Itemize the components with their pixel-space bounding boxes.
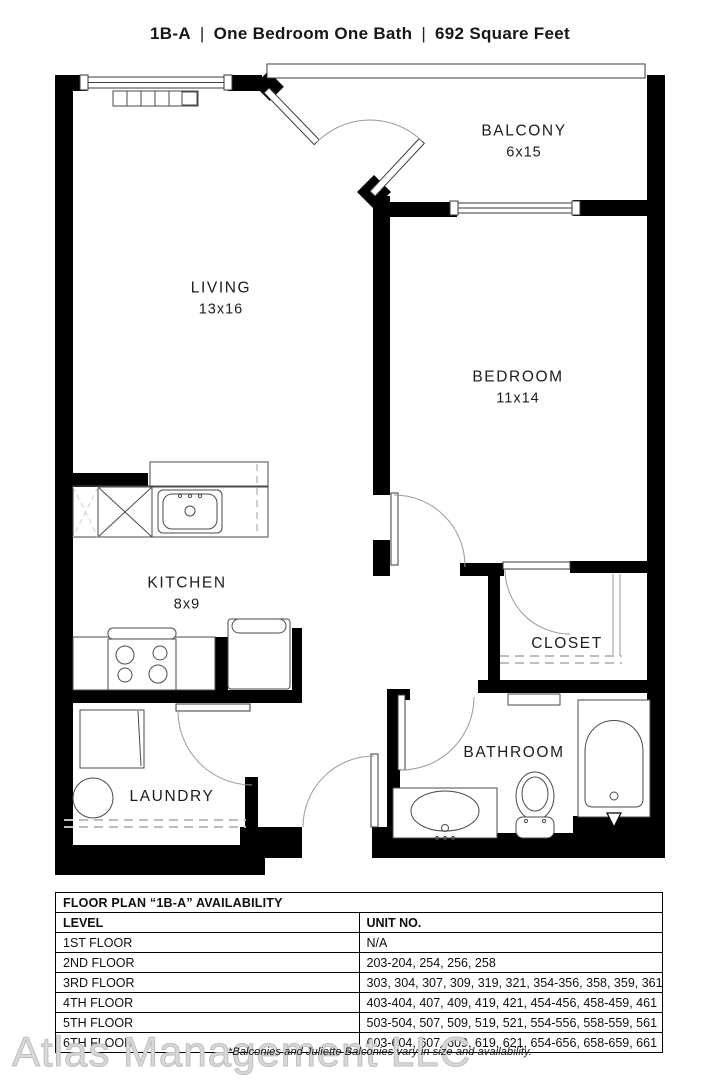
availability-title-row: FLOOR PLAN “1B-A” AVAILABILITY	[56, 893, 663, 913]
dishwasher	[73, 487, 152, 537]
units-cell: 203-204, 254, 256, 258	[359, 953, 663, 973]
laundry-shelf	[64, 820, 246, 827]
level-cell: 4TH FLOOR	[56, 993, 360, 1013]
closet-door	[503, 562, 570, 634]
bedroom-window	[450, 201, 580, 215]
living-name: LIVING	[191, 278, 251, 300]
kitchen-dims: 8x9	[147, 595, 226, 616]
toilet	[516, 772, 554, 838]
stove	[73, 628, 215, 690]
units-cell: N/A	[359, 933, 663, 953]
col-header-level: LEVEL	[56, 913, 360, 933]
bathroom-name: BATHROOM	[463, 742, 564, 764]
bathroom-niche	[508, 694, 560, 705]
level-cell: 2ND FLOOR	[56, 953, 360, 973]
refrigerator	[228, 619, 290, 689]
bedroom-name: BEDROOM	[472, 367, 563, 389]
room-label-closet: CLOSET	[531, 633, 603, 655]
entry-door	[303, 754, 378, 827]
level-cell: 1ST FLOOR	[56, 933, 360, 953]
bathtub	[578, 700, 650, 827]
table-row: 4TH FLOOR 403-404, 407, 409, 419, 421, 4…	[56, 993, 663, 1013]
balcony-footnote: *Balconies and Juliette Balconies vary i…	[228, 1046, 532, 1058]
balcony-railing	[267, 64, 645, 78]
laundry-name: LAUNDRY	[130, 786, 215, 808]
bedroom-dims: 11x14	[472, 389, 563, 410]
col-header-unit-no: UNIT NO.	[359, 913, 663, 933]
dryer	[73, 778, 113, 818]
bedroom-door	[391, 493, 465, 567]
living-window	[80, 75, 232, 90]
closet-name: CLOSET	[531, 633, 603, 655]
room-label-balcony: BALCONY 6x15	[481, 121, 566, 164]
table-row: 2ND FLOOR 203-204, 254, 256, 258	[56, 953, 663, 973]
living-dims: 13x16	[191, 300, 251, 321]
balcony-dims: 6x15	[481, 143, 566, 164]
room-label-bedroom: BEDROOM 11x14	[472, 367, 563, 410]
baseboard-heater	[113, 91, 198, 106]
room-label-bathroom: BATHROOM	[463, 742, 564, 764]
balcony-name: BALCONY	[481, 121, 566, 143]
level-cell: 3RD FLOOR	[56, 973, 360, 993]
walls	[55, 71, 665, 875]
units-cell: 403-404, 407, 409, 419, 421, 454-456, 45…	[359, 993, 663, 1013]
balcony-door	[264, 88, 424, 196]
units-cell: 303, 304, 307, 309, 319, 321, 354-356, 3…	[359, 973, 663, 993]
bathroom-vanity	[393, 788, 497, 840]
room-label-kitchen: KITCHEN 8x9	[147, 573, 226, 616]
table-row: 3RD FLOOR 303, 304, 307, 309, 319, 321, …	[56, 973, 663, 993]
kitchen-sink	[158, 490, 222, 533]
kitchen-name: KITCHEN	[147, 573, 226, 595]
availability-title: FLOOR PLAN “1B-A” AVAILABILITY	[56, 893, 663, 913]
availability-header-row: LEVEL UNIT NO.	[56, 913, 663, 933]
table-row: 1ST FLOOR N/A	[56, 933, 663, 953]
room-label-living: LIVING 13x16	[191, 278, 251, 321]
washer	[80, 710, 144, 768]
laundry-door	[176, 704, 252, 785]
room-label-laundry: LAUNDRY	[130, 786, 215, 808]
